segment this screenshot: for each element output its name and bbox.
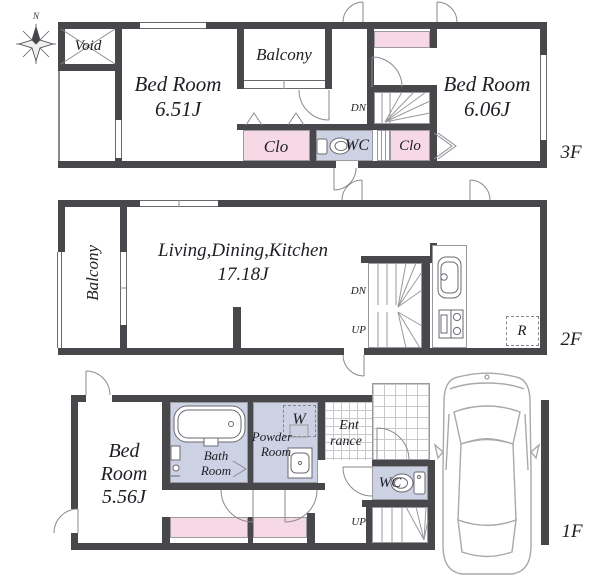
bedroom1-size: 6.51J xyxy=(155,99,201,120)
door-arc xyxy=(299,90,329,120)
window xyxy=(140,200,218,207)
under-stairs-storage xyxy=(377,130,390,161)
balcony-2f-label: Balcony xyxy=(84,245,101,301)
door-arc xyxy=(343,467,372,496)
stairs-1f xyxy=(372,507,428,543)
wall-segment xyxy=(422,263,430,355)
wall-segment xyxy=(367,29,374,92)
wall-segment xyxy=(428,466,435,550)
floor-2f-label: 2F xyxy=(560,330,581,349)
door-opening xyxy=(71,509,78,533)
window xyxy=(115,120,122,158)
wall-segment xyxy=(115,22,122,71)
entrance-label-line1: Ent xyxy=(339,419,358,433)
wall-segment xyxy=(325,22,332,89)
car-icon xyxy=(435,373,539,574)
wall-segment xyxy=(367,85,437,92)
closet-shelf xyxy=(374,31,430,48)
door-arc xyxy=(342,180,362,200)
door-arc xyxy=(437,2,457,22)
wall-segment xyxy=(318,402,325,460)
wc-1f-label: WC xyxy=(379,476,402,491)
closet-right-label: Clo xyxy=(399,139,421,154)
bedroom2-name: Bed Room xyxy=(444,74,531,95)
up-1f-label: UP xyxy=(340,517,366,528)
kitchen-counter xyxy=(432,245,467,348)
ldk-size: 17.18J xyxy=(217,265,268,284)
bedroom1-name: Bed Room xyxy=(135,74,222,95)
wall-segment xyxy=(237,22,244,89)
wall-segment xyxy=(120,325,127,355)
wall-segment xyxy=(58,200,65,252)
bathroom-label-line1: Bath xyxy=(204,449,229,462)
wall-segment xyxy=(362,500,435,507)
wall-segment xyxy=(120,200,127,252)
entrance-porch-tiles xyxy=(372,383,430,460)
wall-segment xyxy=(58,348,547,355)
wall-segment xyxy=(58,22,547,29)
wall-segment xyxy=(430,124,437,168)
bathroom-label-line2: Room xyxy=(201,464,231,477)
window xyxy=(540,55,547,140)
balcony-window xyxy=(120,252,127,325)
void-terrace-edge xyxy=(58,71,60,161)
entrance-label-line2: rance xyxy=(330,435,362,449)
washer-label: W xyxy=(292,412,305,428)
wall-segment xyxy=(430,22,437,48)
bedroom-1f-name-line2: Room xyxy=(101,464,148,484)
compass-icon: N xyxy=(16,11,56,64)
bedroom-1f-size: 5.56J xyxy=(102,487,146,507)
wall-segment xyxy=(540,200,547,355)
wall-segment xyxy=(361,256,430,263)
wall-segment xyxy=(430,85,437,124)
balcony-railing xyxy=(57,252,62,348)
wc-3f-label: WC xyxy=(345,138,369,154)
door-opening xyxy=(344,348,364,355)
wall-segment xyxy=(233,307,241,348)
refrigerator-label: R xyxy=(517,324,526,339)
dn-3f-label: DN xyxy=(338,103,366,114)
bedroom-1f-name-line1: Bed xyxy=(108,441,139,461)
window xyxy=(140,22,206,29)
wall-segment xyxy=(58,161,547,168)
parking-side-wall xyxy=(541,400,549,545)
door-arc xyxy=(470,180,490,200)
balcony-3f-label: Balcony xyxy=(256,46,312,63)
door-opening xyxy=(336,161,358,168)
powder-label-line2: Room xyxy=(261,445,291,458)
wall-segment xyxy=(71,543,435,550)
closet xyxy=(253,517,307,538)
wall-segment xyxy=(58,64,122,71)
stairs-2f xyxy=(368,263,422,348)
wall-segment xyxy=(71,395,377,402)
floor-1f-label: 1F xyxy=(561,522,582,541)
stairs-3f xyxy=(374,92,430,124)
wall-segment xyxy=(58,200,547,207)
closet-door-icon xyxy=(434,133,456,159)
door-arc xyxy=(334,168,356,190)
dn-2f-label: DN xyxy=(338,286,366,297)
closet-left-label: Clo xyxy=(264,138,289,155)
door-arc xyxy=(372,57,402,87)
wall-segment xyxy=(162,402,170,490)
door-arc xyxy=(343,355,364,376)
compass-north-label: N xyxy=(32,11,40,21)
balcony-window xyxy=(244,80,325,89)
wall-segment xyxy=(367,92,374,124)
closet xyxy=(170,517,248,538)
door-arc xyxy=(343,2,363,22)
floor-3f-label: 3F xyxy=(560,143,581,162)
up-2f-label: UP xyxy=(338,325,366,336)
void-label: Void xyxy=(75,39,102,54)
wall-segment xyxy=(162,483,325,490)
floor-plan: N xyxy=(0,0,600,588)
wall-segment xyxy=(307,513,315,543)
door-arc xyxy=(86,371,110,395)
wall-segment xyxy=(162,517,170,543)
powder-label-line1: Powder xyxy=(252,430,292,443)
ldk-name: Living,Dining,Kitchen xyxy=(158,241,328,260)
door-opening xyxy=(86,395,112,402)
bedroom2-size: 6.06J xyxy=(464,99,510,120)
